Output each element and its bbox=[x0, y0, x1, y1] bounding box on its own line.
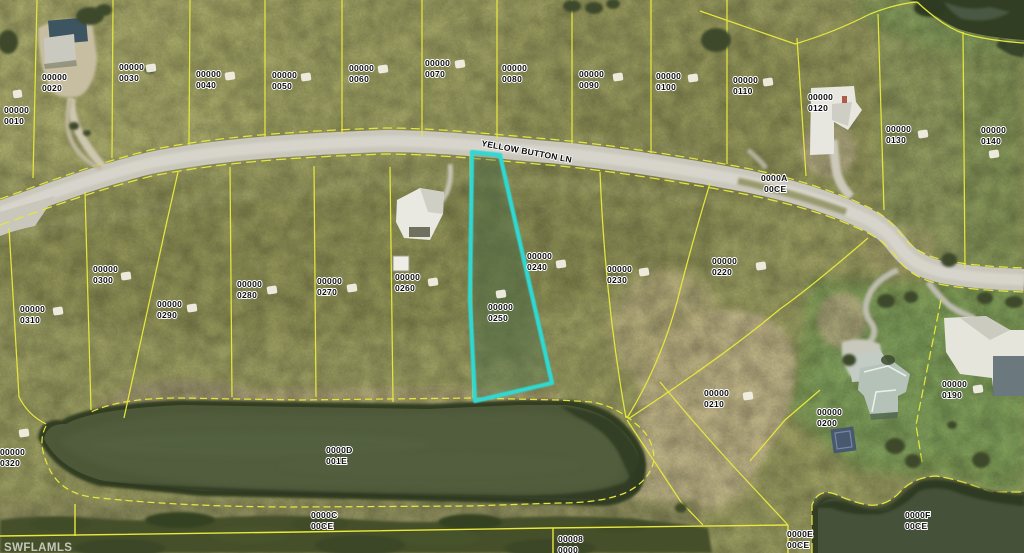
svg-text:0000A00CE: 0000A00CE bbox=[761, 173, 788, 194]
svg-text:SWFLAMLS: SWFLAMLS bbox=[4, 542, 72, 553]
svg-text:0000F00CE: 0000F00CE bbox=[905, 510, 931, 531]
svg-text:0000E00CE: 0000E00CE bbox=[787, 529, 813, 550]
